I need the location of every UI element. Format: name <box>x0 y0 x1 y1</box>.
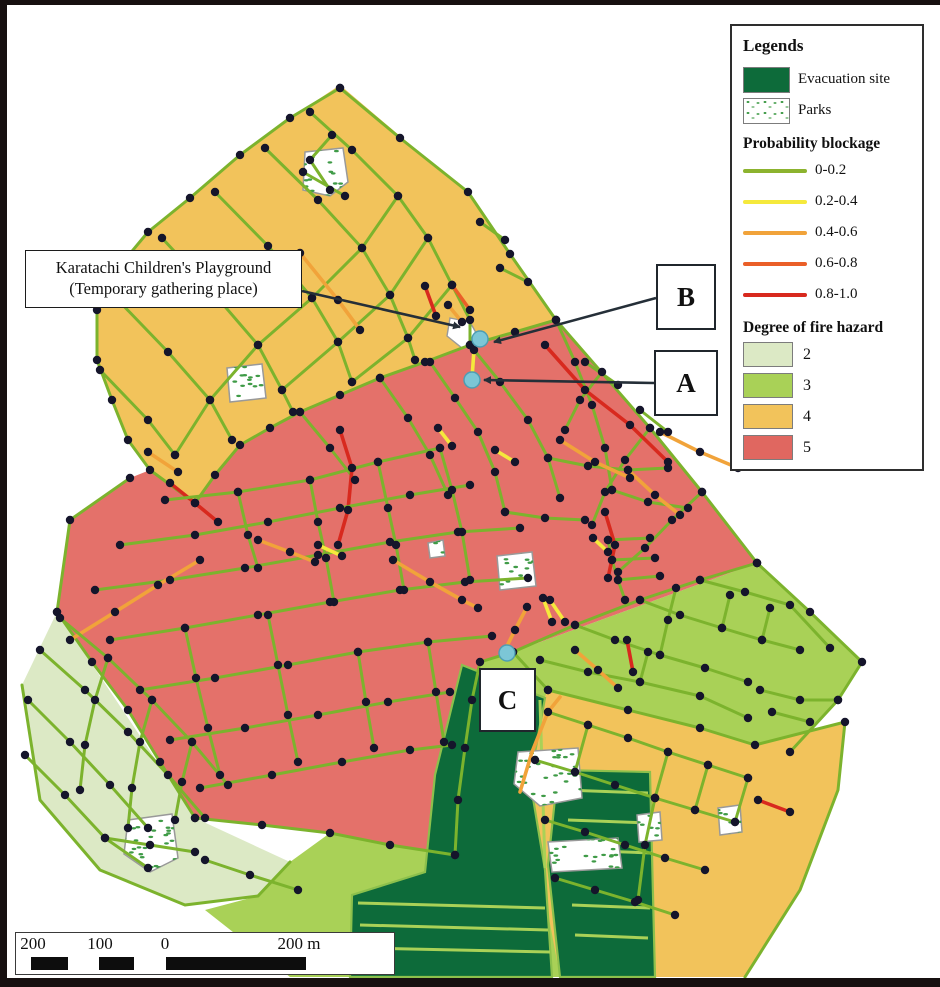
legend-item-hazard-3: 3 <box>743 370 914 401</box>
marker-box-b: B <box>656 264 716 330</box>
legend-item-hazard-5: 5 <box>743 432 914 463</box>
blockage-label: 0.4-0.6 <box>815 224 858 241</box>
scale-label-0: 0 <box>161 934 170 954</box>
blockage-line-swatch <box>743 262 807 266</box>
parks-label: Parks <box>798 102 831 119</box>
legend-item-hazard-4: 4 <box>743 401 914 432</box>
blockage-line-swatch <box>743 231 807 235</box>
evacuation-site-label: Evacuation site <box>798 71 890 88</box>
legend-item-blockage-5: 0.8-1.0 <box>743 279 914 310</box>
marker-a-label: A <box>676 368 696 399</box>
scale-bar-segment <box>31 957 68 970</box>
scale-label-200m: 200 m <box>278 934 321 954</box>
frame-bottom-border <box>0 978 940 987</box>
hazard-swatch <box>743 404 793 429</box>
marker-box-c: C <box>479 668 536 732</box>
road <box>612 558 655 560</box>
hazard-swatch <box>743 435 793 460</box>
legend-item-evacuation-site: Evacuation site <box>743 64 914 95</box>
marker-c-label: C <box>498 685 518 716</box>
frame-left-border <box>0 0 7 987</box>
park-area <box>227 364 266 402</box>
blockage-label: 0-0.2 <box>815 162 846 179</box>
point-C <box>499 645 515 661</box>
legend-item-parks: Parks <box>743 95 914 126</box>
playground-callout-line2: (Temporary gathering place) <box>69 279 258 300</box>
scale-bar-segment <box>166 957 306 970</box>
playground-callout: Karatachi Children's Playground (Tempora… <box>25 250 302 308</box>
legend-panel: Legends Evacuation site Parks Probabilit… <box>730 24 924 471</box>
blockage-line-swatch <box>743 169 807 173</box>
hazard-label: 4 <box>803 408 811 426</box>
marker-b-label: B <box>677 282 695 313</box>
legend-item-blockage-3: 0.4-0.6 <box>743 217 914 248</box>
map-figure: Karatachi Children's Playground (Tempora… <box>0 0 940 987</box>
blockage-line-swatch <box>743 293 807 297</box>
hazard-label: 2 <box>803 346 811 364</box>
hazard-section-title: Degree of fire hazard <box>743 319 914 337</box>
blockage-label: 0.8-1.0 <box>815 286 858 303</box>
point-A <box>464 372 480 388</box>
hazard-label: 3 <box>803 377 811 395</box>
hazard-label: 5 <box>803 439 811 457</box>
blockage-label: 0.6-0.8 <box>815 255 858 272</box>
blockage-label: 0.2-0.4 <box>815 193 858 210</box>
scale-label-200-left: 200 <box>20 934 46 954</box>
legend-item-blockage-4: 0.6-0.8 <box>743 248 914 279</box>
evacuation-site-swatch <box>743 67 790 93</box>
scale-bar-segment <box>99 957 134 970</box>
blockage-section-title: Probability blockage <box>743 135 914 153</box>
parks-swatch <box>743 98 790 124</box>
frame-top-border <box>0 0 940 5</box>
legend-item-blockage-1: 0-0.2 <box>743 155 914 186</box>
playground-callout-line1: Karatachi Children's Playground <box>56 258 272 279</box>
hazard-swatch <box>743 342 793 367</box>
scale-label-100: 100 <box>87 934 113 954</box>
legend-item-hazard-2: 2 <box>743 339 914 370</box>
marker-box-a: A <box>654 350 718 416</box>
legend-item-blockage-2: 0.2-0.4 <box>743 186 914 217</box>
point-B <box>472 331 488 347</box>
hazard-swatch <box>743 373 793 398</box>
blockage-line-swatch <box>743 200 807 204</box>
scale-bar: 200 100 0 200 m <box>15 932 395 975</box>
legend-title: Legends <box>743 36 914 56</box>
